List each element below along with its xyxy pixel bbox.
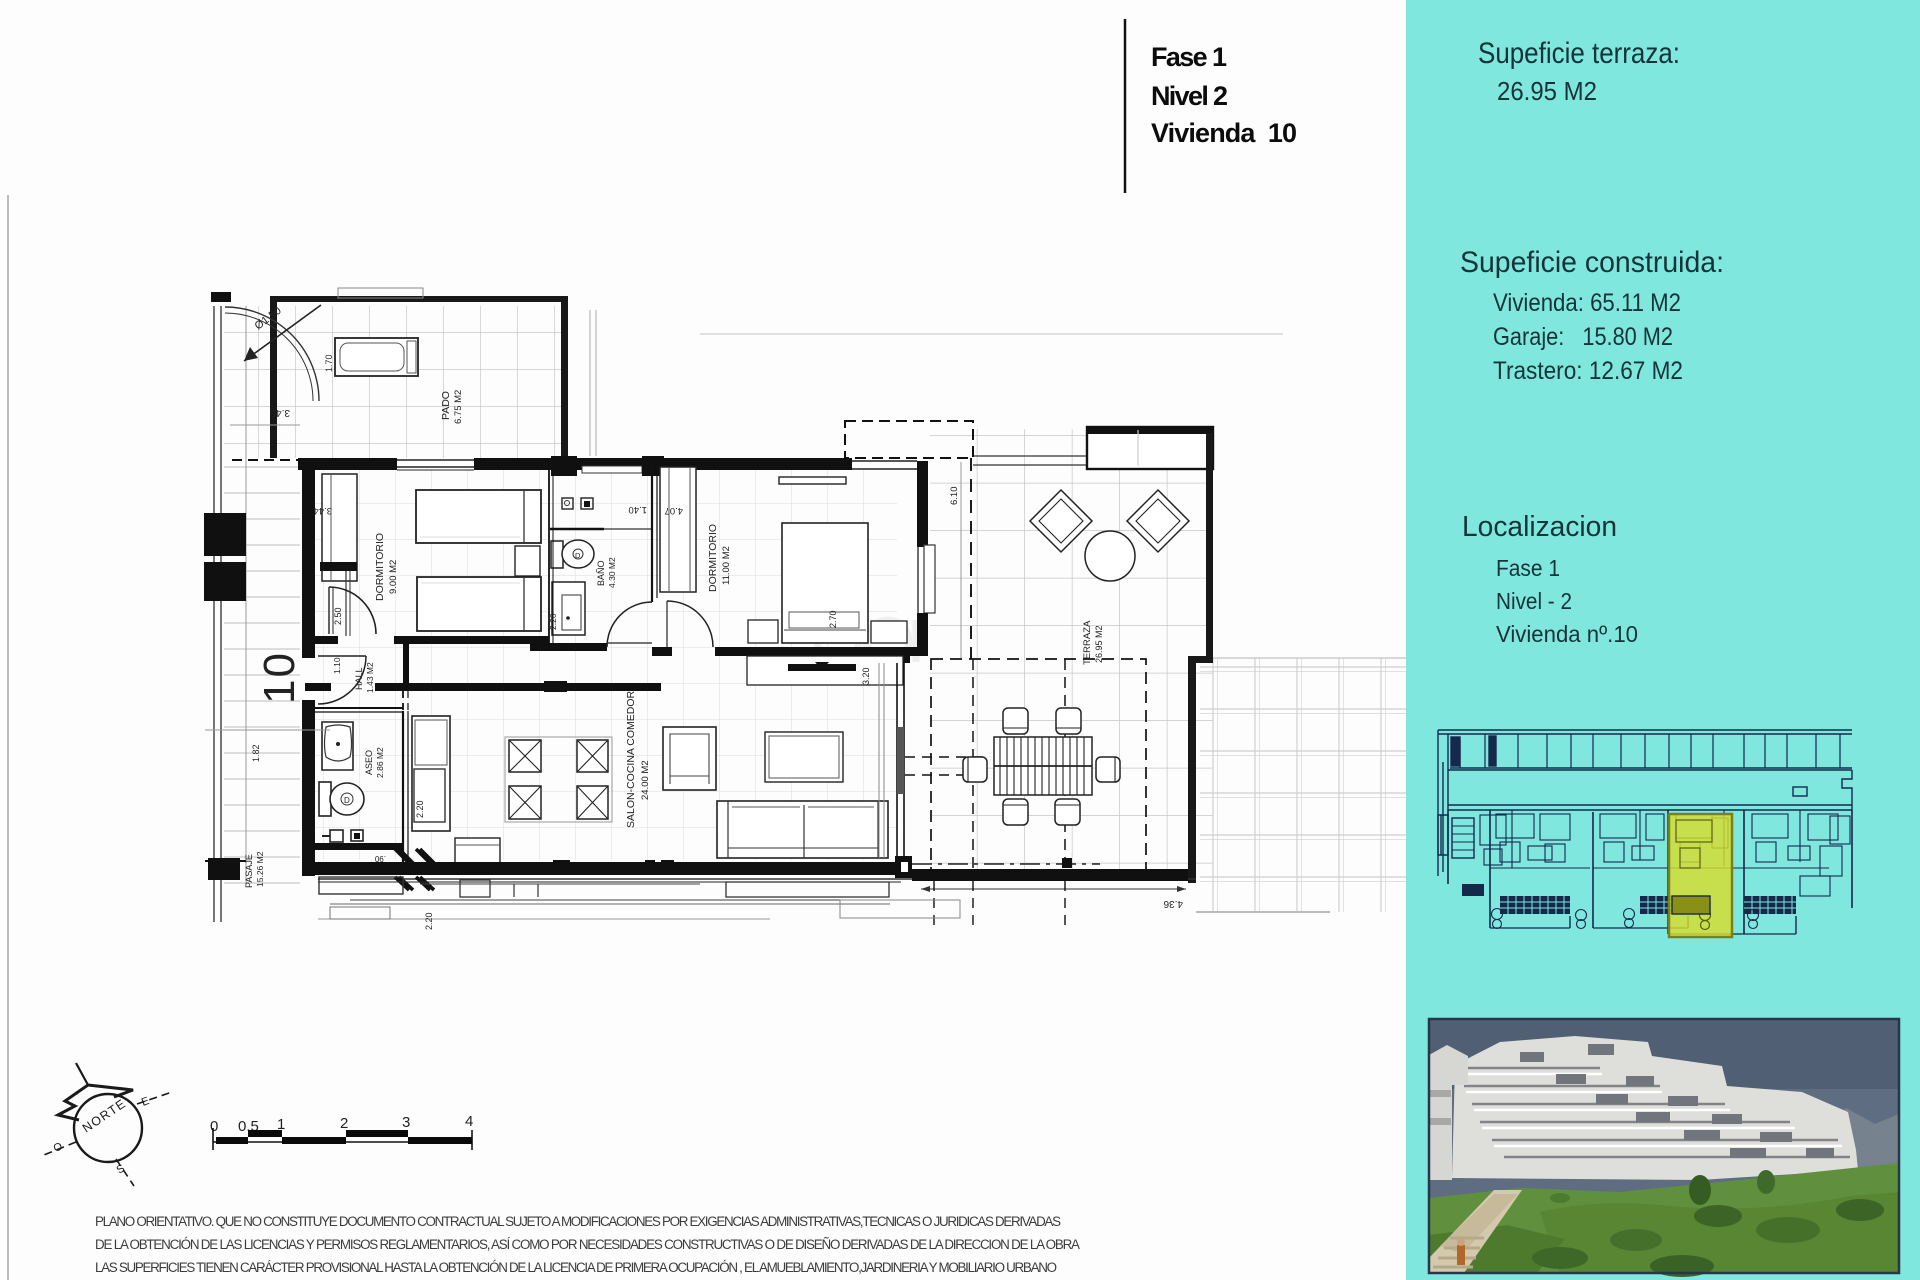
- svg-text:11.00 M2: 11.00 M2: [721, 546, 732, 585]
- svg-text:.90: .90: [374, 854, 386, 863]
- svg-text:Trastero: 12.67 M2: Trastero: 12.67 M2: [1493, 357, 1683, 385]
- svg-text:Nivel 2: Nivel 2: [1151, 81, 1228, 111]
- svg-text:1.43 M2: 1.43 M2: [365, 662, 375, 693]
- svg-text:D: D: [575, 551, 581, 560]
- svg-text:4.07: 4.07: [665, 505, 684, 516]
- svg-text:2.20: 2.20: [415, 800, 425, 818]
- svg-text:4.30 M2: 4.30 M2: [607, 557, 617, 588]
- svg-text:1.82: 1.82: [251, 744, 261, 762]
- svg-text:2.86 M2: 2.86 M2: [375, 747, 385, 778]
- svg-text:3.20: 3.20: [861, 667, 871, 685]
- svg-text:Fase 1: Fase 1: [1151, 42, 1227, 72]
- svg-text:2: 2: [340, 1115, 348, 1132]
- svg-text:Supeficie construida:: Supeficie construida:: [1460, 246, 1724, 279]
- svg-text:2.70: 2.70: [828, 610, 838, 628]
- svg-text:24.00 M2: 24.00 M2: [640, 760, 651, 800]
- svg-text:3.46: 3.46: [270, 407, 290, 418]
- svg-text:HALL: HALL: [354, 667, 364, 690]
- svg-text:6.75 M2: 6.75 M2: [453, 390, 464, 424]
- svg-text:Vivienda 10: Vivienda 10: [1151, 118, 1297, 148]
- svg-text:3: 3: [402, 1114, 410, 1131]
- svg-text:Supeficie terraza:: Supeficie terraza:: [1478, 37, 1680, 70]
- svg-text:1.70: 1.70: [324, 354, 334, 372]
- svg-text:6.10: 6.10: [949, 487, 960, 506]
- svg-text:Fase 1: Fase 1: [1496, 555, 1560, 581]
- svg-text:9.00 M2: 9.00 M2: [388, 560, 399, 594]
- svg-text:SALON-COCINA COMEDOR: SALON-COCINA COMEDOR: [625, 690, 637, 828]
- svg-text:D: D: [344, 796, 350, 805]
- svg-text:2.20: 2.20: [424, 912, 434, 930]
- svg-text:Vivienda nº.10: Vivienda nº.10: [1496, 621, 1638, 647]
- svg-text:26.95 M2: 26.95 M2: [1094, 625, 1104, 663]
- svg-text:LAS SUPERFICIES TIENEN CARÁCTE: LAS SUPERFICIES TIENEN CARÁCTER PROVISIO…: [95, 1260, 1057, 1275]
- svg-text:DE LA OBTENCIÓN DE LAS LICENCI: DE LA OBTENCIÓN DE LAS LICENCIAS Y PERMI…: [95, 1237, 1080, 1252]
- svg-text:DORMITORIO: DORMITORIO: [707, 524, 719, 592]
- svg-text:1.10: 1.10: [332, 657, 342, 674]
- svg-text:26.95 M2: 26.95 M2: [1497, 76, 1597, 106]
- svg-text:15.26 M2: 15.26 M2: [255, 851, 265, 887]
- svg-text:DORMITORIO: DORMITORIO: [374, 533, 386, 601]
- svg-text:ASEO: ASEO: [364, 750, 374, 775]
- svg-text:0: 0: [210, 1118, 218, 1135]
- svg-text:Vivienda: 65.11 M2: Vivienda: 65.11 M2: [1493, 289, 1681, 317]
- svg-text:4: 4: [465, 1113, 473, 1130]
- svg-text:3.44: 3.44: [314, 505, 333, 516]
- svg-text:Garaje: 15.80 M2: Garaje: 15.80 M2: [1493, 323, 1673, 351]
- svg-text:PASAJE: PASAJE: [244, 854, 254, 888]
- svg-text:4.36: 4.36: [1163, 898, 1183, 909]
- svg-text:1.40: 1.40: [629, 504, 648, 515]
- svg-text:Localizacion: Localizacion: [1462, 511, 1617, 543]
- svg-text:Nivel - 2: Nivel - 2: [1496, 588, 1572, 614]
- svg-text:PLANO ORIENTATIVO. QUE NO CONS: PLANO ORIENTATIVO. QUE NO CONSTITUYE DOC…: [95, 1214, 1061, 1229]
- svg-text:TERRAZA: TERRAZA: [1082, 620, 1093, 665]
- svg-text:10: 10: [255, 651, 304, 704]
- svg-text:2.50: 2.50: [333, 607, 343, 625]
- svg-text:PADO: PADO: [440, 391, 452, 420]
- svg-text:BAÑO: BAÑO: [596, 560, 606, 586]
